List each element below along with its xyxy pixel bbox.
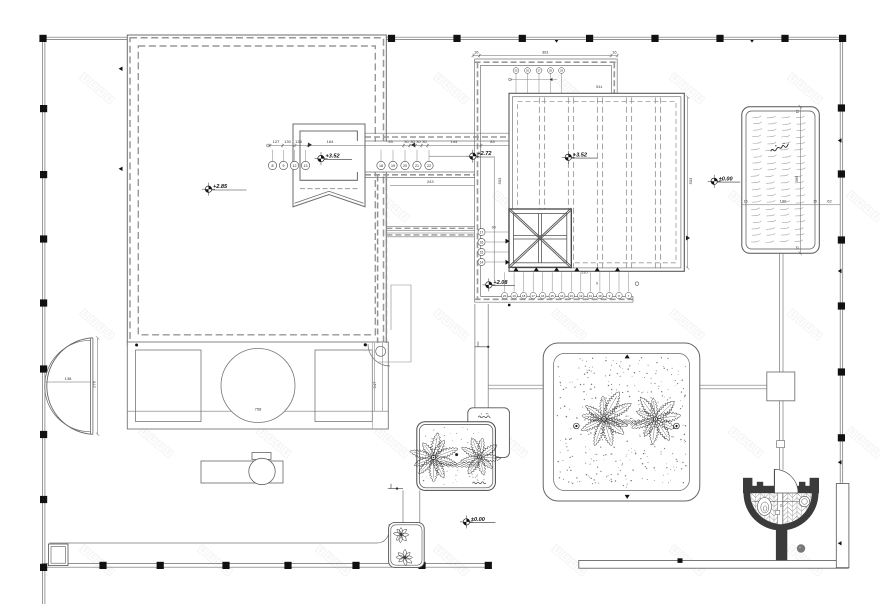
svg-text:18: 18	[379, 164, 383, 168]
svg-text:15: 15	[744, 200, 748, 204]
svg-text:90: 90	[492, 226, 496, 230]
svg-text:127: 127	[273, 139, 280, 144]
svg-text:30: 30	[404, 139, 409, 144]
svg-text:±0.00: ±0.00	[719, 176, 734, 182]
svg-text:13: 13	[570, 294, 574, 298]
svg-text:15: 15	[480, 250, 484, 254]
svg-text:11: 11	[589, 294, 592, 298]
svg-text:8: 8	[272, 164, 274, 168]
svg-text:20: 20	[503, 294, 507, 298]
svg-text:18: 18	[522, 294, 526, 298]
svg-text:21: 21	[415, 164, 419, 168]
svg-text:19: 19	[391, 164, 395, 168]
svg-text:+2.72: +2.72	[477, 151, 492, 157]
svg-text:62: 62	[827, 199, 832, 204]
svg-text:503: 503	[497, 177, 502, 184]
svg-text:138: 138	[65, 376, 72, 381]
svg-text:17: 17	[532, 294, 536, 298]
svg-text:164: 164	[327, 139, 334, 144]
svg-text:14: 14	[560, 294, 564, 298]
svg-text:510: 510	[581, 271, 587, 275]
svg-text:30: 30	[416, 139, 421, 144]
svg-text:20: 20	[403, 164, 407, 168]
svg-text:15: 15	[551, 294, 555, 298]
svg-text:15: 15	[795, 110, 799, 114]
svg-text:±0.00: ±0.00	[471, 517, 486, 523]
svg-text:14: 14	[480, 260, 484, 264]
svg-text:+2.08: +2.08	[493, 280, 508, 286]
svg-text:9: 9	[596, 282, 598, 286]
svg-text:+3.52: +3.52	[573, 152, 588, 158]
svg-text:395: 395	[794, 175, 799, 182]
svg-text:+2.85: +2.85	[213, 184, 228, 190]
svg-text:276: 276	[92, 380, 97, 387]
svg-text:22: 22	[427, 164, 431, 168]
svg-text:83: 83	[490, 139, 495, 144]
svg-text:10: 10	[598, 294, 602, 298]
svg-text:93: 93	[388, 139, 393, 144]
svg-text:16: 16	[541, 294, 545, 298]
svg-text:12: 12	[293, 164, 297, 168]
svg-text:511: 511	[596, 84, 603, 89]
svg-text:30: 30	[422, 139, 427, 144]
svg-text:12: 12	[579, 294, 583, 298]
svg-text:133: 133	[295, 139, 302, 144]
svg-text:503: 503	[688, 177, 693, 184]
svg-text:17: 17	[480, 230, 484, 234]
svg-text:16: 16	[612, 49, 617, 54]
svg-text:15: 15	[795, 246, 799, 250]
svg-text:16: 16	[474, 49, 479, 54]
svg-text:+3.52: +3.52	[326, 154, 341, 160]
svg-text:243: 243	[427, 179, 434, 184]
svg-text:13: 13	[304, 164, 308, 168]
svg-text:144: 144	[451, 139, 458, 144]
svg-text:16: 16	[480, 240, 484, 244]
svg-text:15: 15	[813, 200, 817, 204]
svg-text:19: 19	[512, 294, 516, 298]
svg-text:190: 190	[780, 199, 787, 204]
svg-text:758: 758	[255, 407, 262, 412]
svg-text:381: 381	[542, 49, 549, 54]
svg-text:130: 130	[284, 139, 291, 144]
svg-text:9: 9	[283, 164, 285, 168]
